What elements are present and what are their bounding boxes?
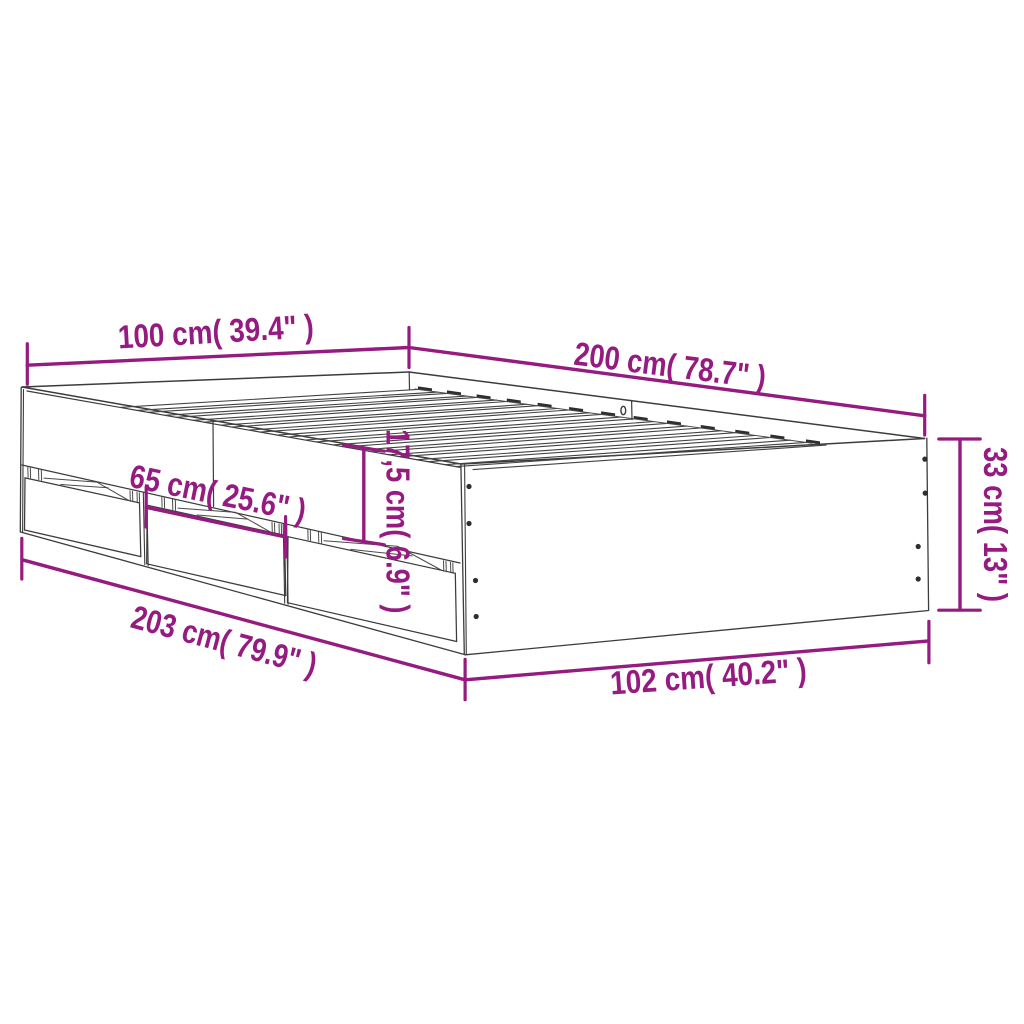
svg-text:33 cm( 13" ): 33 cm( 13" )	[977, 447, 1014, 602]
svg-text:17,5 cm( 6.9" ): 17,5 cm( 6.9" )	[380, 429, 417, 614]
